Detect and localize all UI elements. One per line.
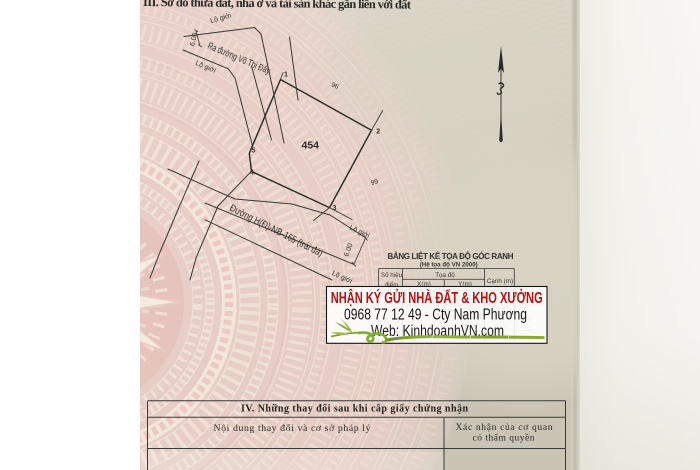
svg-text:NHẬN KÝ GỬI NHÀ ĐẤT & KHO XƯỞN: NHẬN KÝ GỬI NHÀ ĐẤT & KHO XƯỞNG: [331, 288, 543, 307]
svg-text:0968 77 12 49 - Cty Nam Phương: 0968 77 12 49 - Cty Nam Phương: [344, 307, 527, 324]
svg-text:(Hệ tọa độ VN 2000): (Hệ tọa độ VN 2000): [420, 261, 478, 268]
svg-text:2: 2: [376, 128, 380, 135]
svg-text:IV. Những thay đổi sau khi cấp: IV. Những thay đổi sau khi cấp giấy chứn…: [241, 403, 468, 414]
svg-text:454: 454: [302, 140, 320, 152]
svg-text:Xác nhận của cơ quan: Xác nhận của cơ quan: [456, 423, 553, 433]
svg-text:BẢNG LIỆT KÊ TỌA ĐỘ GÓC RANH: BẢNG LIỆT KÊ TỌA ĐỘ GÓC RANH: [388, 252, 514, 261]
svg-text:Nội dung thay đổi và cơ sở phá: Nội dung thay đổi và cơ sở pháp lý: [214, 423, 371, 434]
svg-text:Tọa độ: Tọa độ: [435, 272, 455, 279]
svg-text:4: 4: [250, 170, 254, 177]
svg-text:Cạnh (m): Cạnh (m): [487, 278, 513, 285]
svg-text:có thẩm quyền: có thẩm quyền: [473, 432, 535, 443]
svg-text:Số hiệu: Số hiệu: [381, 270, 403, 279]
svg-text:3: 3: [333, 205, 337, 212]
svg-text:1: 1: [284, 72, 288, 79]
svg-text:5: 5: [252, 148, 256, 155]
